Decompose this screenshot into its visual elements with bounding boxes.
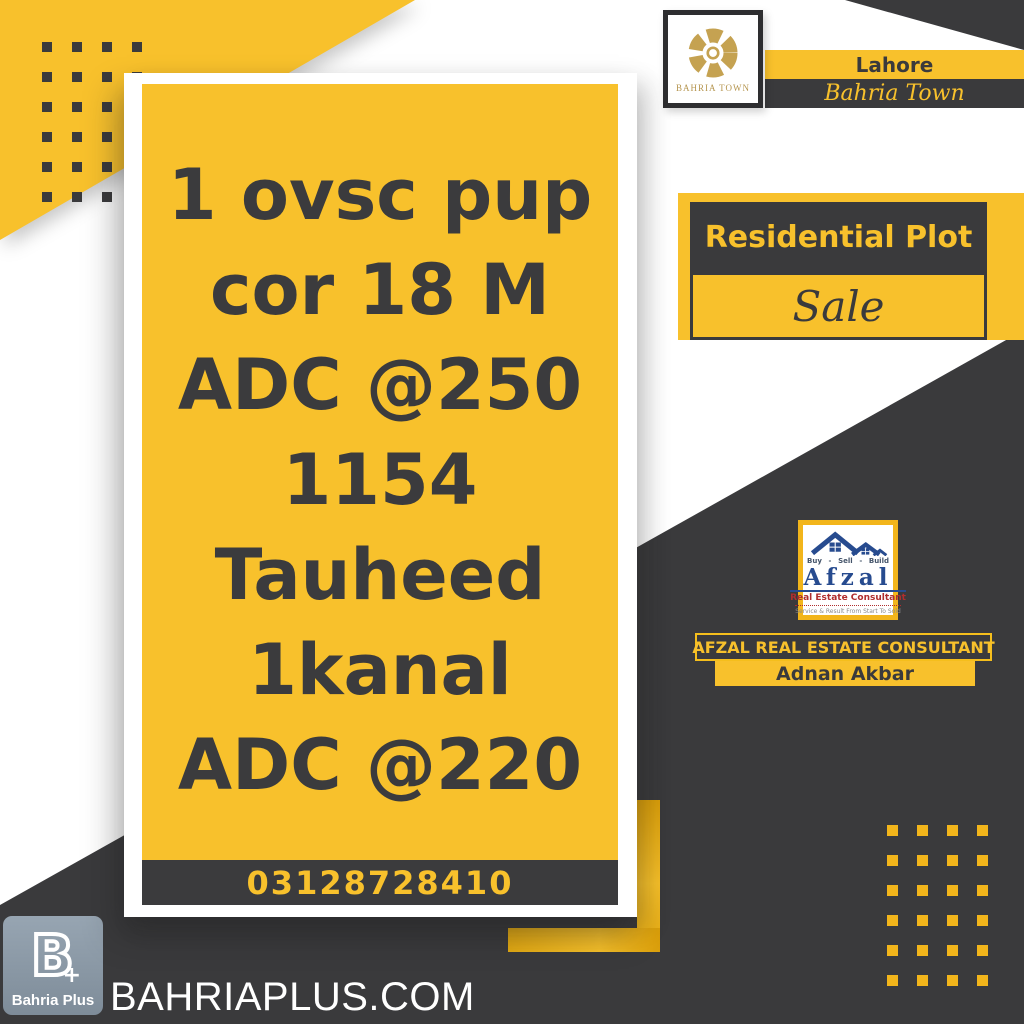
website-url: BAHRIAPLUS.COM [110,974,475,1020]
listing-badge-panel: Residential Plot Sale [678,193,1024,340]
listing-line: 1 ovsc pup [142,148,618,243]
listing-line: 1154 [142,433,618,528]
brand-label: Bahria Town [824,81,964,106]
listing-line: ADC @220 [142,718,618,813]
bahria-plus-monogram-icon: B + [23,930,83,990]
poster-canvas: BAHRIA TOWN Lahore Bahria Town Residenti… [0,0,1024,1024]
listing-line: cor 18 M [142,243,618,338]
monogram-plus: + [63,963,81,988]
listing-details: 1 ovsc pup cor 18 M ADC @250 1154 Tauhee… [142,148,618,813]
bahria-town-logo-caption: BAHRIA TOWN [676,83,750,93]
bahria-town-mandala-icon [685,25,741,81]
phone-number: 03128728410 [247,864,514,902]
city-bar: Lahore [765,50,1024,79]
listing-card: 1 ovsc pup cor 18 M ADC @250 1154 Tauhee… [124,73,637,917]
afzal-logo-motto: Service & Result From Start To Sold [795,605,901,615]
afzal-logo-box: Buy - Sell - Build Afzal Real Estate Con… [798,520,898,620]
agency-name: AFZAL REAL ESTATE CONSULTANT [692,638,994,657]
agent-name-bar: Adnan Akbar [715,661,975,686]
agent-name: Adnan Akbar [776,663,914,685]
brand-bar: Bahria Town [765,79,1024,108]
bahria-town-logo-box: BAHRIA TOWN [663,10,763,108]
listing-card-inner: 1 ovsc pup cor 18 M ADC @250 1154 Tauhee… [142,84,618,905]
listing-line: Tauheed [142,528,618,623]
city-label: Lahore [856,53,934,77]
phone-bar: 03128728410 [142,860,618,905]
listing-status-label: Sale [792,282,884,331]
listing-type-badge: Residential Plot [690,202,987,272]
listing-line: ADC @250 [142,338,618,433]
accent-bracket-horizontal [508,928,660,952]
agency-name-bar: AFZAL REAL ESTATE CONSULTANT [695,633,992,661]
afzal-logo-subtitle: Real Estate Consultant [790,590,906,603]
bahria-plus-label: Bahria Plus [12,992,95,1009]
listing-status-badge: Sale [690,272,987,340]
listing-line: 1kanal [142,623,618,718]
bahria-plus-logo-box: B + Bahria Plus [3,916,103,1015]
house-roofs-icon [805,529,891,556]
listing-type-label: Residential Plot [705,220,973,255]
afzal-logo-name: Afzal [803,566,892,590]
dark-corner-triangle [845,0,1024,50]
